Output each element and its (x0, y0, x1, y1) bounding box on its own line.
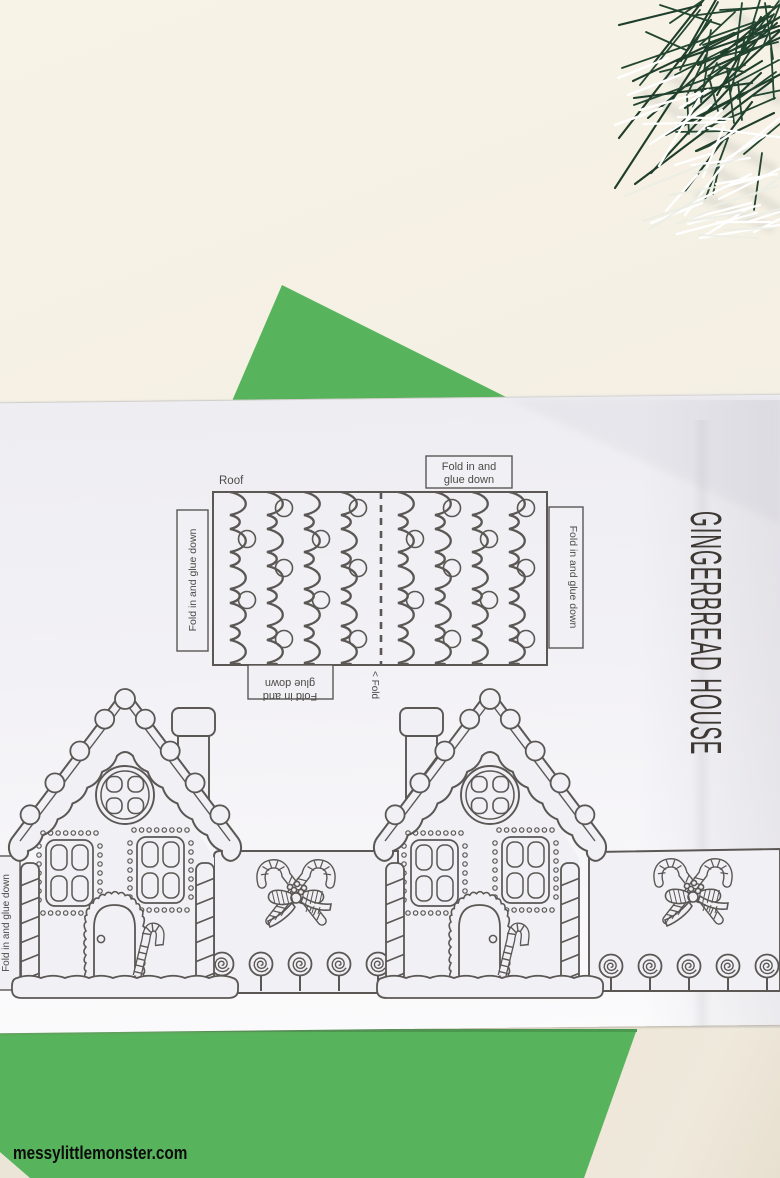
svg-text:Fold in and glue down: Fold in and glue down (187, 528, 199, 631)
svg-text:Roof: Roof (219, 475, 244, 487)
svg-text:Fold in and glue down: Fold in and glue down (567, 526, 579, 629)
svg-text:< Fold: < Fold (369, 671, 380, 699)
svg-text:Fold in and glue down: Fold in and glue down (1, 874, 12, 972)
svg-text:Fold in and: Fold in and (442, 461, 496, 473)
svg-text:Fold in and: Fold in and (263, 690, 317, 702)
svg-text:GINGERBREAD HOUSE: GINGERBREAD HOUSE (681, 511, 730, 755)
svg-text:glue down: glue down (444, 474, 494, 486)
svg-text:glue down: glue down (265, 677, 315, 689)
